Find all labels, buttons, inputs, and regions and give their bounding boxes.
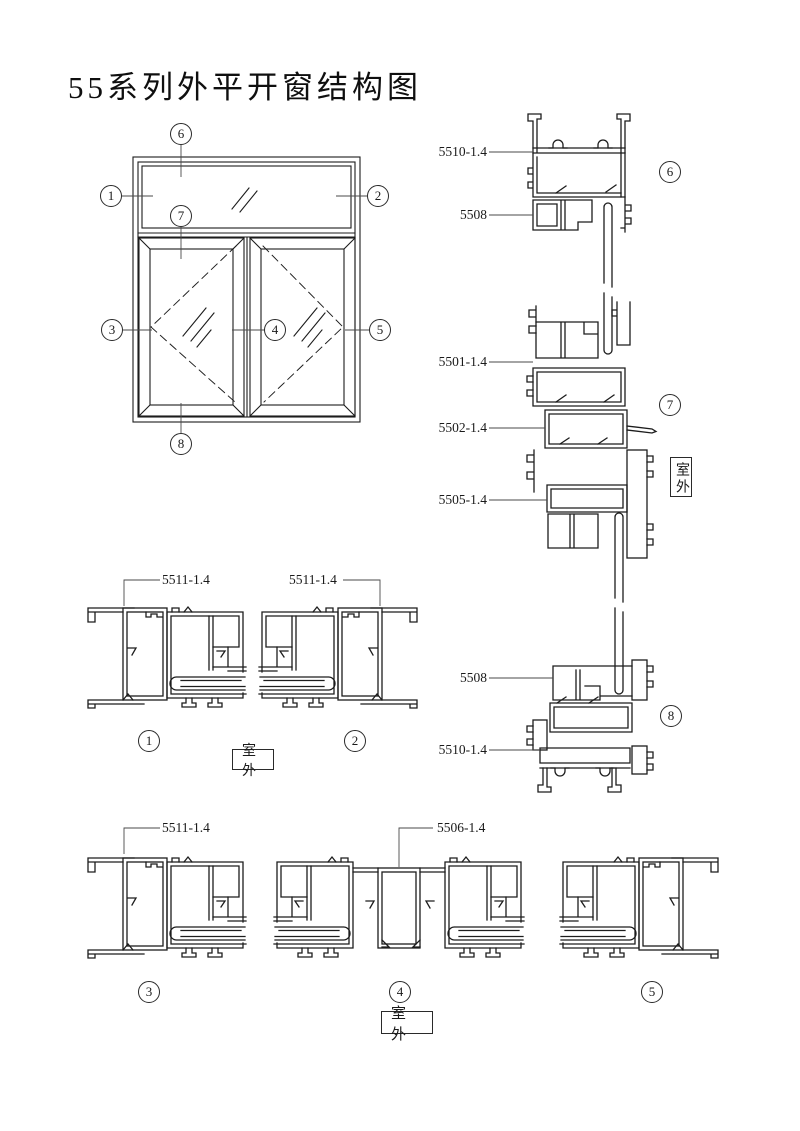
glazing-bead-5508-sill [553, 666, 632, 700]
part-label-mullion: 5506-1.4 [437, 819, 485, 837]
section-marker-8: 8 [660, 705, 682, 727]
part-label-lower-sash-top: 5505-1.4 [427, 491, 487, 509]
section-marker-7: 7 [659, 394, 681, 416]
section-3-profile [88, 857, 246, 958]
callout-circle-8: 8 [170, 433, 192, 455]
callout-circle-7: 7 [170, 205, 192, 227]
section-marker-2: 2 [344, 730, 366, 752]
elevation-drawing [133, 157, 360, 422]
section-2-profile [259, 607, 417, 708]
part-label-jamb-3: 5511-1.4 [162, 819, 210, 837]
glass-line-lower [615, 513, 623, 694]
drawing-title: 55系列外平开窗结构图 [68, 62, 422, 107]
section-8-profile [527, 660, 653, 792]
glazing-bead-5508 [533, 200, 592, 230]
part-label-jamb-2: 5511-1.4 [289, 571, 337, 589]
section-4-profile [274, 857, 524, 957]
profile-5510-sill [540, 748, 630, 768]
callout-circle-1: 1 [100, 185, 122, 207]
part-label-upper-sash-top: 5501-1.4 [427, 353, 487, 371]
part-label-transom: 5502-1.4 [427, 419, 487, 437]
section-1-profile [88, 607, 246, 708]
outdoor-box-middle: 室外 [232, 749, 274, 770]
part-label-sill-bead: 5508 [427, 669, 487, 687]
callout-circle-4: 4 [264, 319, 286, 341]
part-label-head-bead: 5508 [427, 206, 487, 224]
section-marker-4: 4 [389, 981, 411, 1003]
part-label-head-frame: 5510-1.4 [427, 143, 487, 161]
glazing-hatch [183, 188, 325, 347]
outdoor-box-bottom: 室外 [381, 1011, 433, 1034]
section-marker-3: 3 [138, 981, 160, 1003]
section-6-profile [528, 114, 631, 354]
outdoor-box-right: 室外 [670, 457, 692, 497]
glass-line-upper [604, 203, 612, 354]
section-7-profile [527, 302, 656, 694]
part-label-sill-frame: 5510-1.4 [427, 741, 487, 759]
callout-circle-2: 2 [367, 185, 389, 207]
section-marker-1: 1 [138, 730, 160, 752]
section-marker-6: 6 [659, 161, 681, 183]
profile-5501 [533, 368, 625, 406]
left-sash [139, 238, 244, 416]
callout-circle-3: 3 [101, 319, 123, 341]
part-label-jamb-1: 5511-1.4 [162, 571, 210, 589]
section-5-profile [560, 857, 718, 958]
mullion-5506 [353, 868, 445, 948]
callout-circle-5: 5 [369, 319, 391, 341]
screw-boss-omegas [549, 140, 612, 148]
handle-lever [627, 426, 656, 433]
profile-5505 [547, 485, 627, 512]
drawing-sheet: 55系列外平开窗结构图 5510-1.4 5508 5501-1.4 5502-… [0, 0, 800, 1131]
transom-lines [138, 233, 355, 237]
profile-5502 [545, 410, 627, 448]
section-marker-5: 5 [641, 981, 663, 1003]
callout-circle-6: 6 [170, 123, 192, 145]
leader-lines [122, 145, 553, 867]
